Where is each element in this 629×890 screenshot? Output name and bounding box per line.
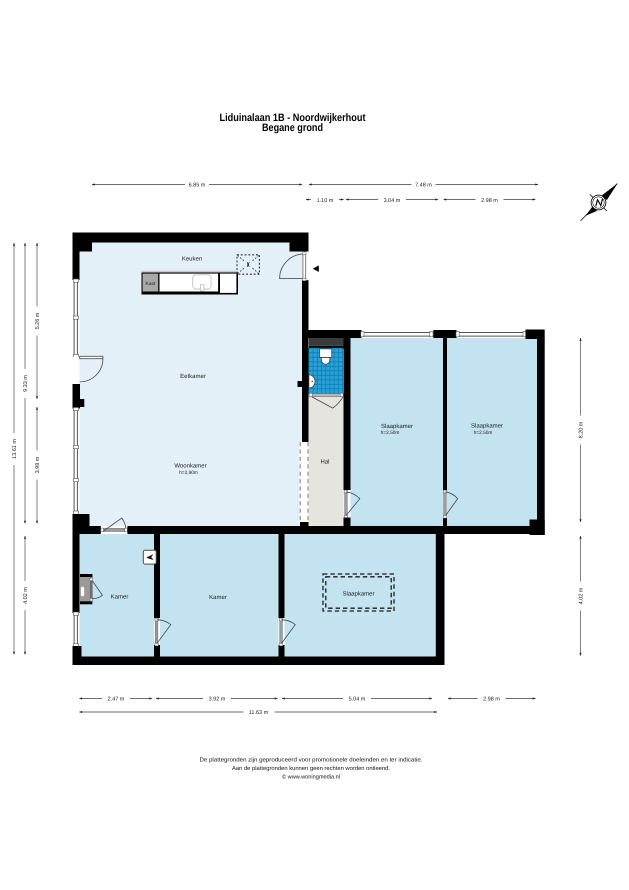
svg-text:h=2,90m: h=2,90m <box>179 470 198 476</box>
svg-text:3.98 m: 3.98 m <box>35 456 41 473</box>
svg-text:3.04 m: 3.04 m <box>384 198 401 204</box>
svg-text:Aan de plattegronden kunnen ge: Aan de plattegronden kunnen geen rechten… <box>232 765 390 772</box>
svg-text:5.04 m: 5.04 m <box>349 697 366 703</box>
svg-text:13.61 m: 13.61 m <box>12 439 18 459</box>
svg-text:4.02 m: 4.02 m <box>23 587 29 604</box>
svg-text:2.47 m: 2.47 m <box>108 697 125 703</box>
svg-text:Hal: Hal <box>320 458 329 465</box>
svg-text:2.98 m: 2.98 m <box>483 697 500 703</box>
svg-text:5.26 m: 5.26 m <box>35 312 41 329</box>
svg-text:3.92 m: 3.92 m <box>209 697 226 703</box>
svg-text:11.63 m: 11.63 m <box>249 710 269 716</box>
svg-text:Kast: Kast <box>145 281 156 287</box>
svg-text:h=2.50m: h=2.50m <box>474 430 493 436</box>
svg-text:Slaapkamer: Slaapkamer <box>471 422 503 429</box>
svg-text:Begane grond: Begane grond <box>262 122 323 134</box>
svg-text:Keuken: Keuken <box>182 255 202 262</box>
svg-text:9.33 m: 9.33 m <box>23 375 29 392</box>
svg-text:Slaapkamer: Slaapkamer <box>342 591 374 598</box>
svg-text:4.02 m: 4.02 m <box>579 587 585 604</box>
svg-text:7.48 m: 7.48 m <box>415 183 432 189</box>
svg-text:Kamer: Kamer <box>111 593 129 600</box>
svg-text:2.98 m: 2.98 m <box>481 198 498 204</box>
svg-text:© www.woningmedia.nl: © www.woningmedia.nl <box>282 773 340 780</box>
svg-text:Woonkamer: Woonkamer <box>174 462 206 469</box>
svg-text:Eetkamer: Eetkamer <box>180 373 206 380</box>
svg-text:Slaapkamer: Slaapkamer <box>381 423 413 430</box>
svg-text:1.10 m: 1.10 m <box>317 198 334 204</box>
svg-text:8.20 m: 8.20 m <box>579 421 585 438</box>
svg-text:Kamer: Kamer <box>209 594 227 601</box>
svg-text:h=2,50m: h=2,50m <box>381 430 400 436</box>
svg-text:De plattegronden zijn geproduc: De plattegronden zijn geproduceerd voor … <box>200 756 423 763</box>
svg-text:6.85 m: 6.85 m <box>189 183 206 189</box>
